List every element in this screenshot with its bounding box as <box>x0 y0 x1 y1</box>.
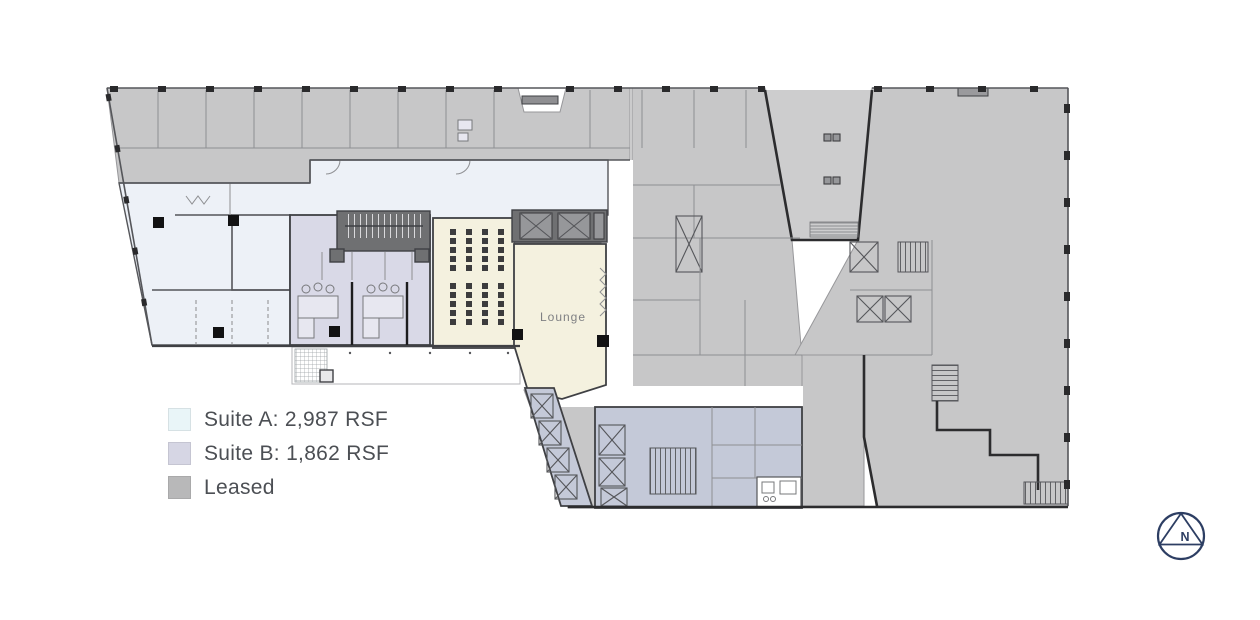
seat-grid <box>450 229 515 273</box>
legend-item-leased: Leased <box>168 476 389 499</box>
entry-recess <box>522 96 558 104</box>
legend-label-suite-a: Suite A: 2,987 RSF <box>204 408 388 432</box>
training-room-region <box>433 218 520 348</box>
seat-grid <box>450 283 515 326</box>
suite-b-region <box>290 211 430 345</box>
north-label: N <box>1180 530 1189 544</box>
elevator-xbox <box>558 213 590 239</box>
stair <box>650 448 696 494</box>
courtyard-grille <box>810 222 858 237</box>
elevator-xbox <box>520 213 552 239</box>
legend-swatch-suite-a <box>168 408 191 431</box>
stair <box>898 242 928 272</box>
stair <box>932 365 958 401</box>
kitchen <box>757 477 801 507</box>
legend-swatch-suite-b <box>168 442 191 465</box>
legend-label-suite-b: Suite B: 1,862 RSF <box>204 442 389 466</box>
north-compass-icon: N <box>1158 513 1204 559</box>
legend-swatch-leased <box>168 476 191 499</box>
floor-plan-svg: Lounge <box>0 0 1260 620</box>
stair <box>1024 482 1068 504</box>
legend-item-suite-b: Suite B: 1,862 RSF <box>168 442 389 465</box>
lounge-region: Lounge <box>514 244 606 399</box>
terrace <box>292 347 520 384</box>
legend-item-suite-a: Suite A: 2,987 RSF <box>168 408 389 431</box>
lounge-label: Lounge <box>540 310 586 324</box>
legend-label-leased: Leased <box>204 476 275 500</box>
legend: Suite A: 2,987 RSF Suite B: 1,862 RSF Le… <box>168 408 389 510</box>
floor-plan-page: Lounge <box>0 0 1260 620</box>
